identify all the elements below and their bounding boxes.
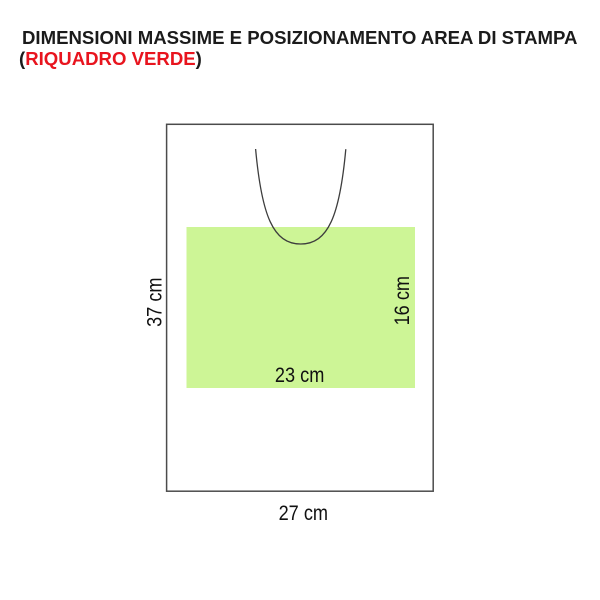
svg-text:37 cm: 37 cm: [143, 277, 167, 326]
svg-text:16 cm: 16 cm: [391, 276, 415, 325]
svg-text:27 cm: 27 cm: [279, 502, 328, 526]
svg-text:23 cm: 23 cm: [275, 364, 324, 388]
